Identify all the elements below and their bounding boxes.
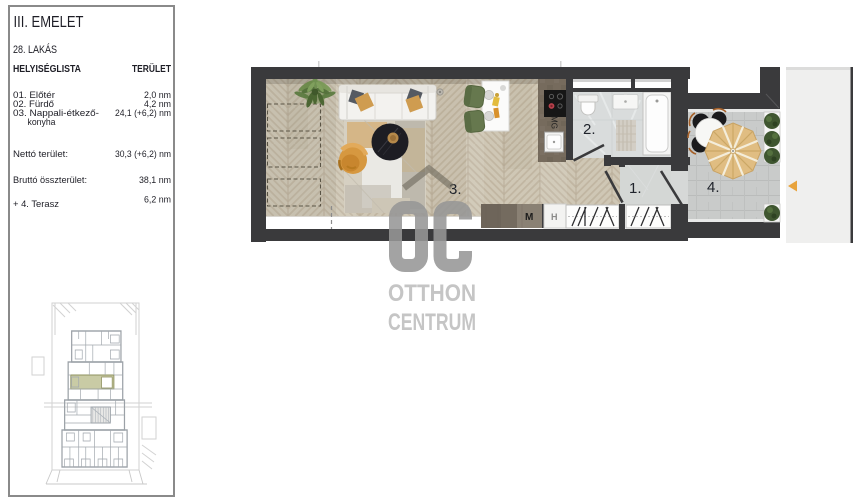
svg-text:OTTHON: OTTHON	[388, 280, 476, 307]
svg-text:CENTRUM: CENTRUM	[388, 309, 476, 336]
